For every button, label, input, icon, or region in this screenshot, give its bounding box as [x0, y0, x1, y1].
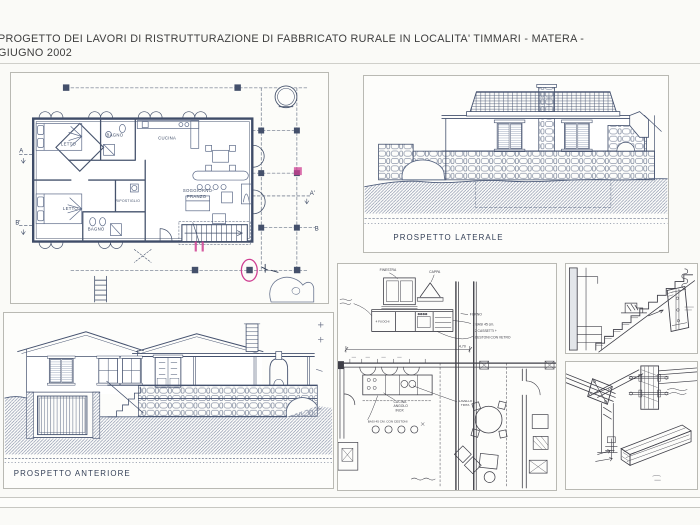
stair-detail-panel — [565, 263, 698, 354]
title-divider — [0, 63, 700, 64]
note-base: BASI 45 CM. CON CESTONI — [368, 420, 408, 424]
note-cappa: CAPPA — [429, 270, 441, 274]
front-elevation-drawing: PROSPETTO ANTERIORE — [4, 313, 333, 488]
room-label-ripostiglio: RIPOSTIGLIO — [115, 199, 140, 203]
note-fuochi: 4 FUOCHI — [376, 320, 390, 324]
stair-detail-drawing — [566, 264, 697, 353]
note-cassetti: 2 CASSETTI + — [475, 329, 497, 333]
section-marker-b1: B' — [15, 221, 20, 227]
drawing-sheet: PROGETTO DEI LAVORI DI RISTRUTTURAZIONE … — [0, 0, 700, 525]
title-line-2: GIUGNO 2002 — [0, 46, 598, 60]
note-cucina-3: INOX — [395, 409, 404, 413]
lateral-elevation-panel: PROSPETTO LATERALE — [363, 75, 669, 253]
note-forno: FORNO — [470, 313, 483, 317]
floor-plan-panel: LETTO BAGNO CUCINA LETTO BAGNO RIPOSTIGL… — [10, 72, 329, 304]
section-marker-a: A — [19, 148, 23, 154]
front-elevation-panel: PROSPETTO ANTERIORE — [3, 312, 334, 489]
front-elevation-label: PROSPETTO ANTERIORE — [14, 469, 131, 478]
note-lavello-1: LAVELLO + — [459, 399, 475, 403]
kitchen-sketch-drawing: FINESTRA CAPPA 4 FUOCHI FORNO 2 BASI 45 … — [338, 264, 556, 490]
window-left — [494, 120, 525, 152]
section-marker-b: B — [315, 227, 319, 233]
ground-hatch — [365, 179, 668, 214]
note-basi: 2 BASI 45 cm. — [473, 322, 495, 326]
stone-base — [446, 151, 655, 180]
room-label-bagno-2: BAGNO — [88, 227, 105, 232]
note-finestra: FINESTRA — [380, 268, 397, 272]
room-label-pranzo: PRANZO — [187, 194, 207, 199]
room-label-cucina: CUCINA — [158, 135, 176, 140]
sheet-title: PROGETTO DEI LAVORI DI RISTRUTTURAZIONE … — [0, 32, 598, 60]
note-cucina-2: ANGOLO — [393, 404, 408, 408]
lateral-elevation-drawing: PROSPETTO LATERALE — [364, 76, 668, 252]
window-right — [561, 120, 592, 152]
joinery-detail-panel — [565, 361, 698, 490]
room-label-soggiorno: SOGGIORNO- — [183, 188, 214, 193]
lateral-elevation-label: PROSPETTO LATERALE — [393, 233, 503, 242]
entry-door — [153, 355, 183, 387]
terrace-wall — [138, 386, 317, 399]
bread-oven — [270, 358, 288, 385]
title-line-1: PROGETTO DEI LAVORI DI RISTRUTTURAZIONE … — [0, 32, 598, 46]
chimney — [539, 87, 555, 112]
stair-symbol — [179, 222, 250, 245]
dimension-value: 4,70 — [459, 344, 466, 348]
floor-plan-drawing: LETTO BAGNO CUCINA LETTO BAGNO RIPOSTIGL… — [11, 73, 328, 303]
room-label-letto-1: LETTO — [61, 141, 77, 146]
note-cucina-1: CUCINA — [393, 400, 407, 404]
kitchen-sketch-panel: FINESTRA CAPPA 4 FUOCHI FORNO 2 BASI 45 … — [337, 263, 557, 491]
room-label-bagno-1: BAGNO — [107, 132, 124, 137]
round-feature — [275, 86, 297, 108]
note-cestoni: CESTONI CON VETRO — [475, 335, 511, 339]
bottom-strip — [0, 497, 700, 508]
note-lavello-2: TRITA — [461, 403, 471, 407]
room-label-letto-2: LETTO — [63, 206, 79, 211]
joinery-detail-drawing — [566, 362, 697, 489]
section-marker-a1: A' — [310, 191, 315, 197]
